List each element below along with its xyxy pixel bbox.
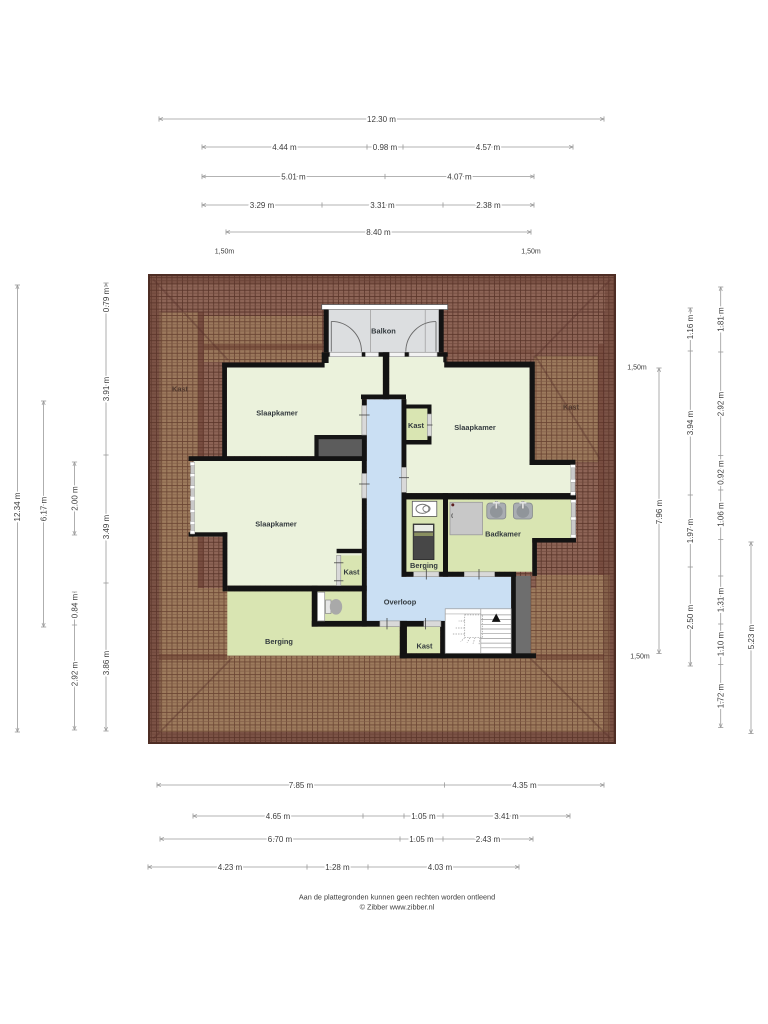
svg-text:12.30 m: 12.30 m bbox=[367, 115, 396, 124]
svg-text:© Zibber www.zibber.nl: © Zibber www.zibber.nl bbox=[360, 903, 435, 912]
svg-text:4.23 m: 4.23 m bbox=[218, 863, 243, 872]
svg-text:Overloop: Overloop bbox=[384, 598, 417, 607]
svg-text:7.96 m: 7.96 m bbox=[655, 499, 664, 524]
svg-text:Slaapkamer: Slaapkamer bbox=[256, 409, 298, 418]
svg-text:3.31 m: 3.31 m bbox=[370, 201, 395, 210]
svg-text:3.49 m: 3.49 m bbox=[102, 514, 111, 539]
svg-text:4.07 m: 4.07 m bbox=[447, 172, 472, 181]
svg-text:3.91 m: 3.91 m bbox=[102, 376, 111, 401]
svg-text:2.43 m: 2.43 m bbox=[476, 835, 501, 844]
svg-text:7.85 m: 7.85 m bbox=[289, 781, 314, 790]
svg-text:Kast: Kast bbox=[408, 421, 425, 430]
svg-text:1,50m: 1,50m bbox=[630, 654, 650, 661]
svg-text:3.86 m: 3.86 m bbox=[102, 650, 111, 675]
svg-text:1,50m: 1,50m bbox=[215, 249, 235, 256]
svg-text:5.01 m: 5.01 m bbox=[281, 172, 306, 181]
svg-text:Badkamer: Badkamer bbox=[485, 530, 521, 539]
svg-text:1.97 m: 1.97 m bbox=[686, 518, 695, 543]
svg-text:3.41 m: 3.41 m bbox=[494, 812, 519, 821]
svg-text:2.50 m: 2.50 m bbox=[686, 604, 695, 629]
svg-text:5.23 m: 5.23 m bbox=[747, 624, 756, 649]
svg-text:Aan de plattegronden kunnen ge: Aan de plattegronden kunnen geen rechten… bbox=[299, 893, 495, 902]
svg-text:8.40 m: 8.40 m bbox=[366, 228, 391, 237]
svg-text:Balkon: Balkon bbox=[371, 327, 396, 336]
svg-text:Kast: Kast bbox=[563, 403, 580, 412]
svg-text:1,50m: 1,50m bbox=[521, 249, 541, 256]
svg-text:Berging: Berging bbox=[265, 637, 293, 646]
svg-text:1.72 m: 1.72 m bbox=[717, 683, 726, 708]
svg-text:2.92 m: 2.92 m bbox=[70, 661, 79, 686]
svg-text:Kast: Kast bbox=[416, 642, 433, 651]
svg-text:4.35 m: 4.35 m bbox=[512, 781, 537, 790]
svg-text:3.29 m: 3.29 m bbox=[250, 201, 275, 210]
svg-text:1,50m: 1,50m bbox=[627, 365, 647, 372]
svg-text:3.94 m: 3.94 m bbox=[686, 410, 695, 435]
svg-text:0.98 m: 0.98 m bbox=[373, 143, 398, 152]
svg-text:4.57 m: 4.57 m bbox=[476, 143, 501, 152]
svg-text:2.38 m: 2.38 m bbox=[476, 201, 501, 210]
svg-text:2.92 m: 2.92 m bbox=[717, 391, 726, 416]
svg-text:Kast: Kast bbox=[343, 568, 360, 577]
svg-text:4.44 m: 4.44 m bbox=[272, 143, 297, 152]
svg-text:1.31 m: 1.31 m bbox=[717, 587, 726, 612]
svg-text:Kast: Kast bbox=[172, 385, 189, 394]
svg-text:1.81 m: 1.81 m bbox=[717, 307, 726, 332]
svg-text:1.10 m: 1.10 m bbox=[717, 631, 726, 656]
svg-text:1.28 m: 1.28 m bbox=[325, 863, 350, 872]
svg-text:0.92 m: 0.92 m bbox=[717, 460, 726, 485]
svg-text:6.17 m: 6.17 m bbox=[39, 496, 48, 521]
svg-text:Slaapkamer: Slaapkamer bbox=[454, 423, 496, 432]
svg-text:4.65 m: 4.65 m bbox=[266, 812, 291, 821]
svg-text:Berging: Berging bbox=[410, 561, 438, 570]
svg-text:1.05 m: 1.05 m bbox=[411, 812, 436, 821]
svg-text:1.06 m: 1.06 m bbox=[717, 502, 726, 527]
svg-text:4.03 m: 4.03 m bbox=[428, 863, 453, 872]
svg-text:12.34 m: 12.34 m bbox=[13, 492, 22, 521]
svg-text:Slaapkamer: Slaapkamer bbox=[255, 520, 297, 529]
svg-text:1.05 m: 1.05 m bbox=[409, 835, 434, 844]
svg-text:0.79 m: 0.79 m bbox=[102, 287, 111, 312]
svg-text:6.70 m: 6.70 m bbox=[268, 835, 293, 844]
svg-text:0.84 m: 0.84 m bbox=[70, 593, 79, 618]
svg-text:1.16 m: 1.16 m bbox=[686, 314, 695, 339]
svg-text:2.00 m: 2.00 m bbox=[70, 486, 79, 511]
